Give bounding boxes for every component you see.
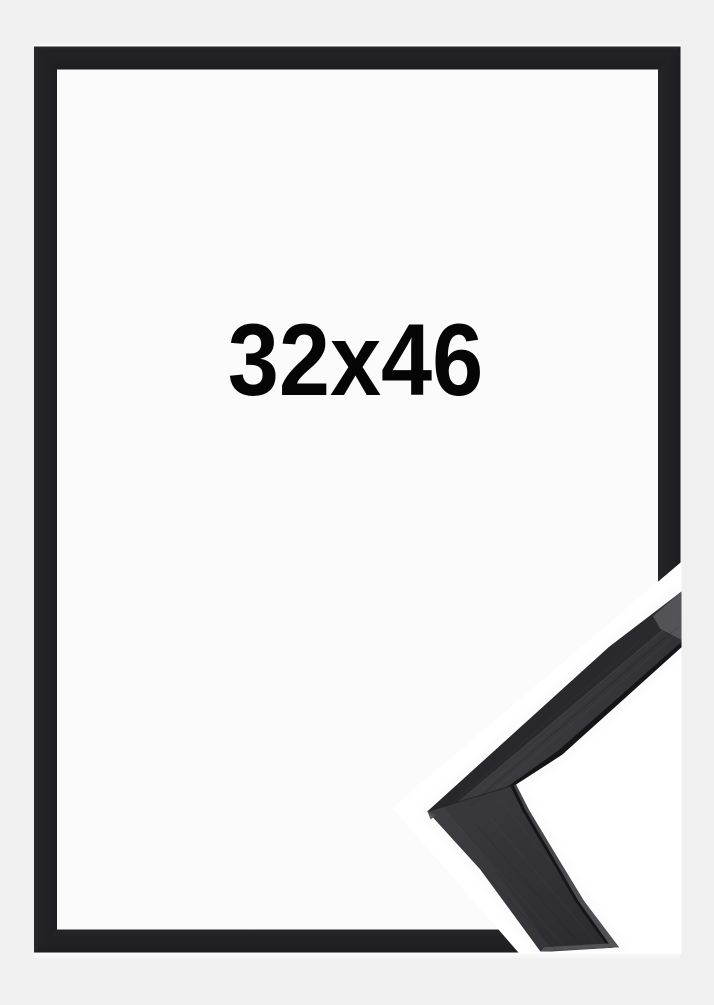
svg-text:32x46: 32x46 — [228, 302, 484, 417]
